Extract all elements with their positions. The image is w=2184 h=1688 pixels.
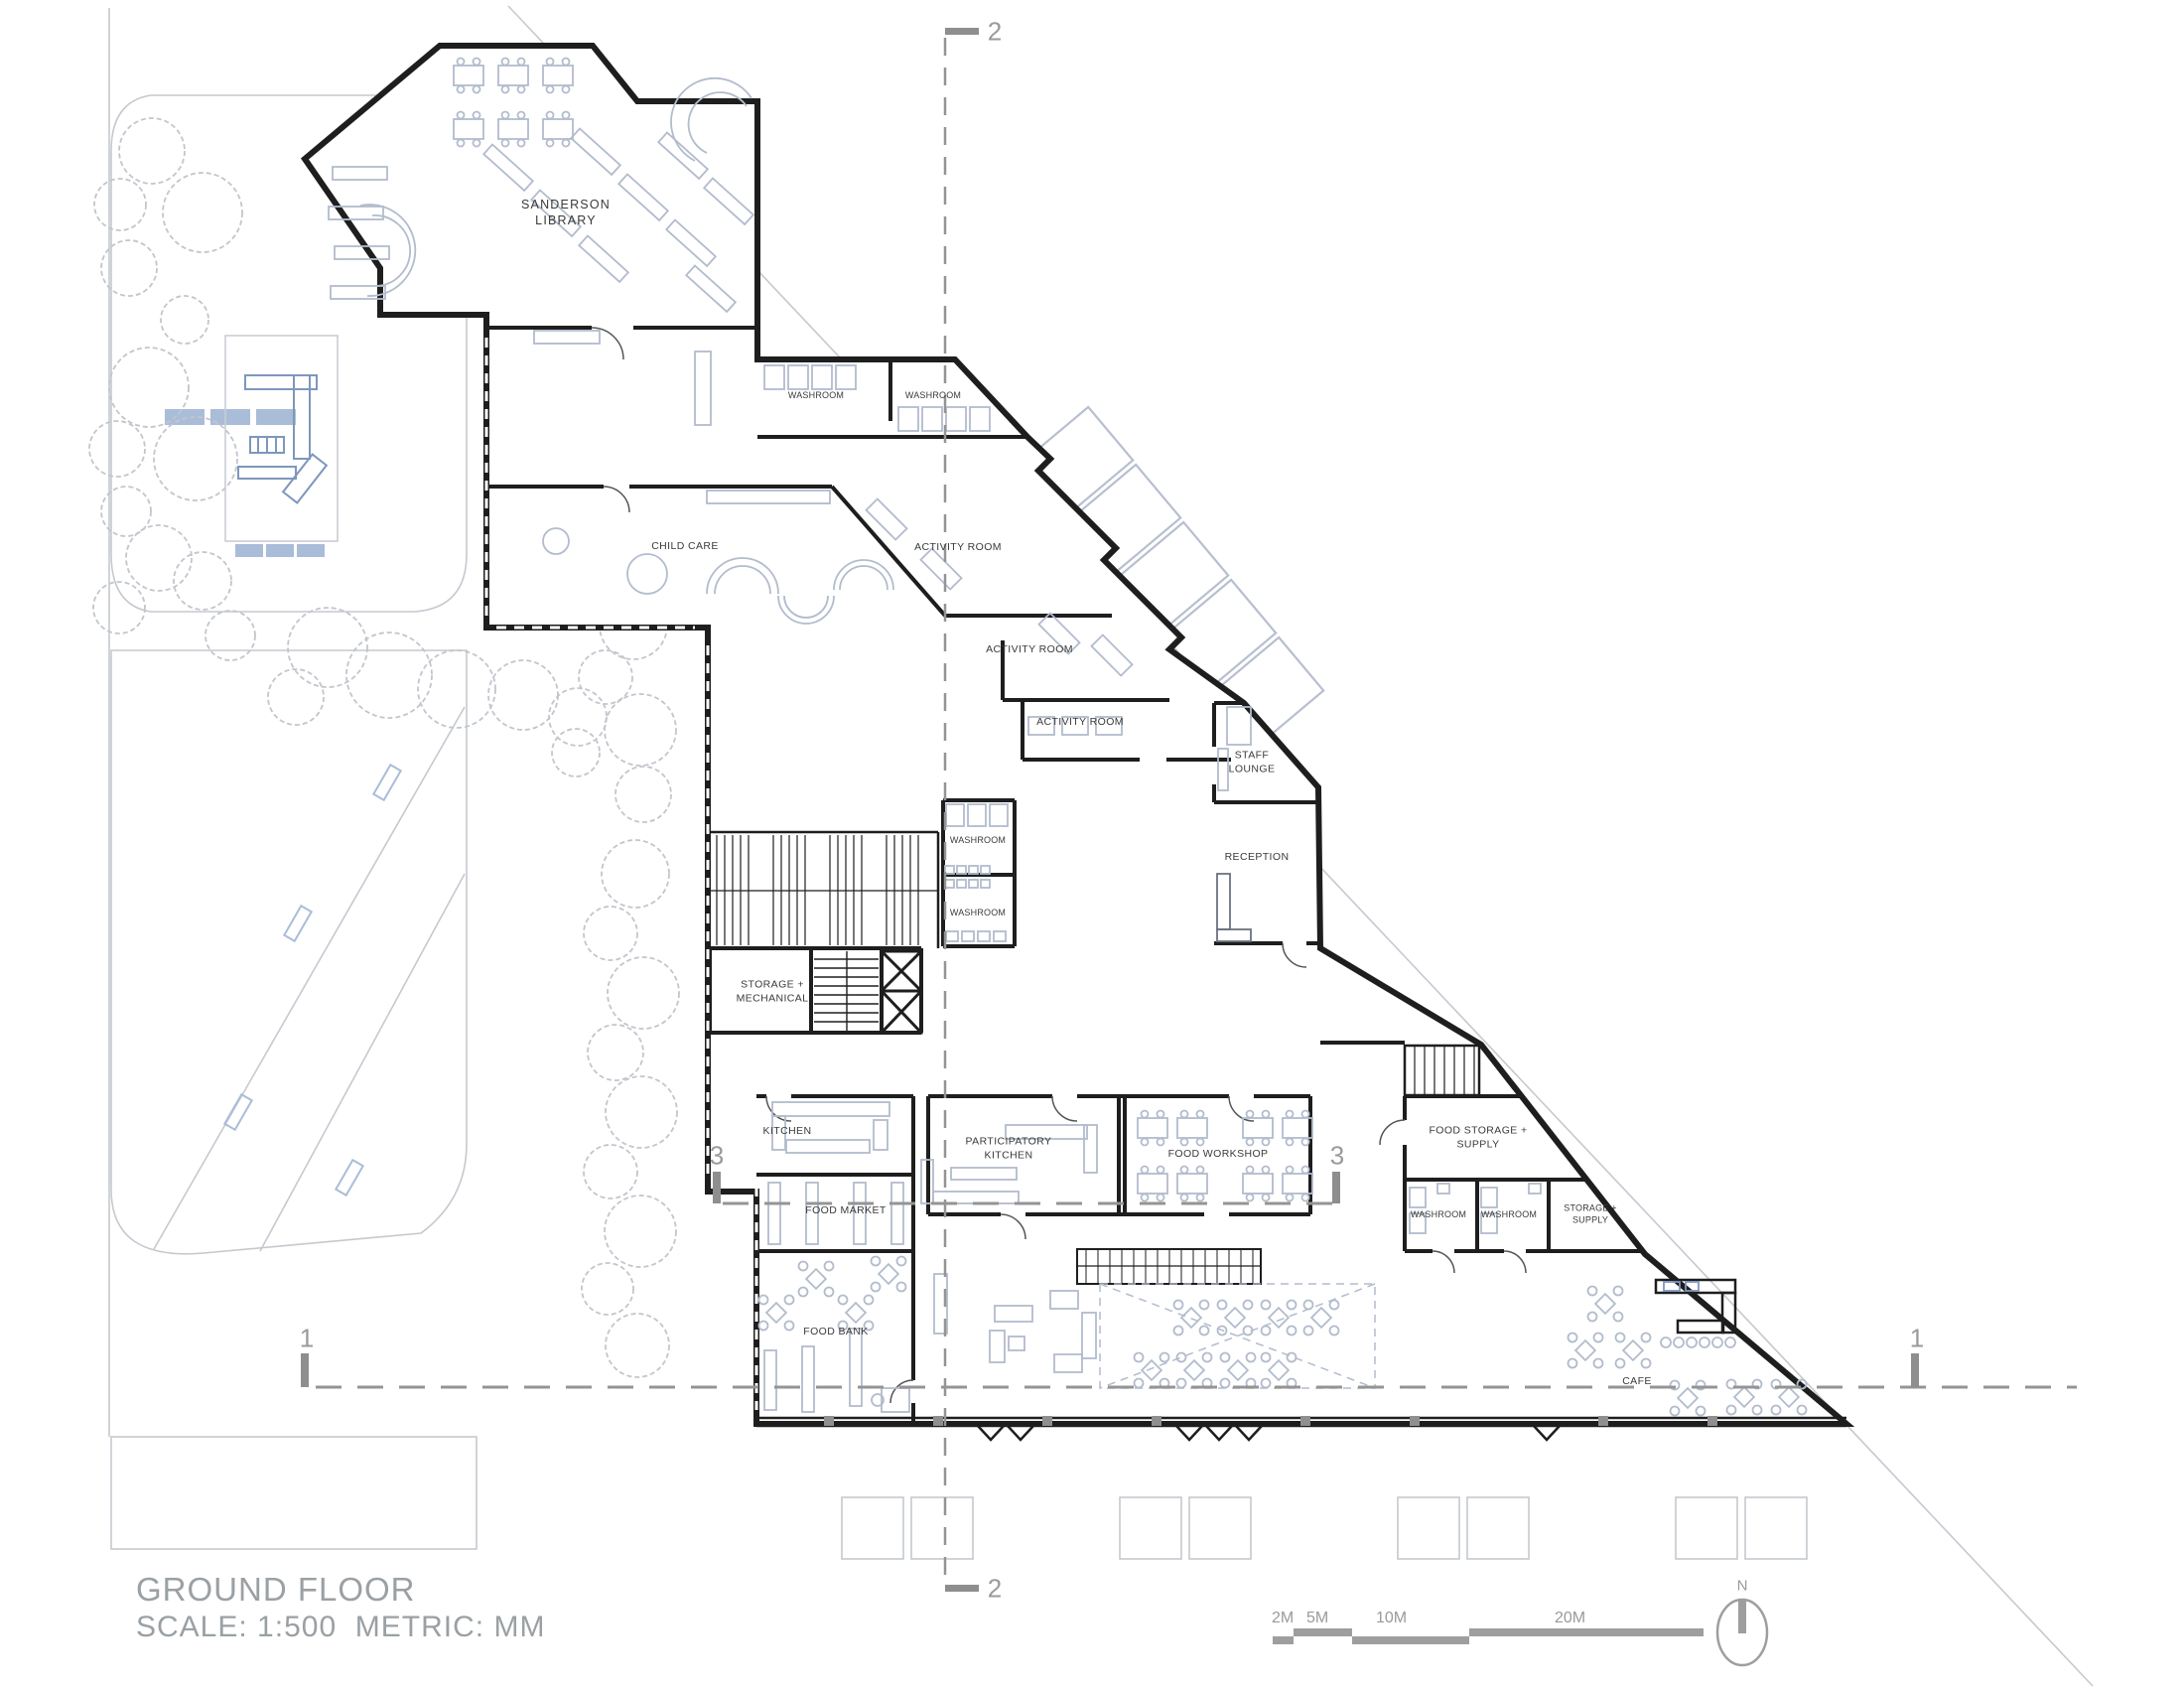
- north-arrow: [1717, 1600, 1767, 1665]
- floor-plan-sheet: SANDERSON LIBRARY WASHROOM WASHROOM CHIL…: [0, 0, 2184, 1688]
- room-label-activity-room-3: ACTIVITY ROOM: [1036, 716, 1124, 730]
- room-label-storage-supply: STORAGE + SUPPLY: [1564, 1202, 1616, 1225]
- lawn-path-1: [154, 707, 465, 1249]
- scale-label-20m: 20M: [1555, 1610, 1585, 1627]
- section-marker-1-right: 1: [1910, 1324, 1924, 1354]
- upper-benches: [165, 409, 296, 425]
- paving-squares: [842, 1497, 1807, 1559]
- room-label-washroom-3: WASHROOM: [950, 835, 1006, 847]
- floor-plan-drawing: [0, 0, 2184, 1688]
- room-label-washroom-4: WASHROOM: [950, 908, 1006, 919]
- room-label-washroom-6: WASHROOM: [1481, 1209, 1537, 1221]
- scale-label-10m: 10M: [1376, 1610, 1407, 1627]
- room-label-washroom-1: WASHROOM: [788, 390, 844, 402]
- lawn-path-2: [260, 874, 465, 1251]
- section-marker-1-left: 1: [300, 1324, 314, 1354]
- room-label-food-workshop: FOOD WORKSHOP: [1168, 1148, 1269, 1162]
- section-marker-3-right: 3: [1330, 1141, 1344, 1172]
- room-label-washroom-5: WASHROOM: [1411, 1209, 1466, 1221]
- room-label-child-care: CHILD CARE: [651, 540, 719, 554]
- room-label-sanderson-library: SANDERSON LIBRARY: [521, 197, 611, 229]
- room-label-food-market: FOOD MARKET: [805, 1204, 886, 1218]
- room-label-activity-room-2: ACTIVITY ROOM: [986, 643, 1073, 657]
- room-label-activity-room-1: ACTIVITY ROOM: [914, 541, 1002, 555]
- section-marker-2-top: 2: [988, 17, 1002, 48]
- north-arrow-label: N: [1737, 1578, 1748, 1595]
- drawing-title: GROUND FLOOR: [136, 1571, 416, 1609]
- lawn-lower: [111, 650, 467, 1254]
- room-label-food-storage-supply: FOOD STORAGE + SUPPLY: [1429, 1124, 1527, 1151]
- section-marker-3-left: 3: [710, 1141, 724, 1172]
- room-label-washroom-2: WASHROOM: [905, 390, 961, 402]
- scale-label-2m: 2M: [1272, 1610, 1294, 1627]
- section-marker-2-bottom: 2: [988, 1574, 1002, 1605]
- scale-label-5m: 5M: [1306, 1610, 1328, 1627]
- room-label-cafe: CAFE: [1622, 1375, 1652, 1389]
- room-label-food-bank: FOOD BANK: [803, 1326, 868, 1339]
- room-label-storage-mechanical: STORAGE + MECHANICAL: [737, 978, 809, 1005]
- room-label-reception: RECEPTION: [1225, 851, 1290, 865]
- entry-doors: [978, 1426, 1560, 1440]
- room-label-staff-lounge: STAFF LOUNGE: [1229, 749, 1276, 775]
- room-label-participatory-kitchen: PARTICIPATORY KITCHEN: [966, 1135, 1052, 1162]
- site-pad-bottom-left: [111, 1437, 477, 1549]
- drawing-scale-note: SCALE: 1:500 METRIC: MM: [136, 1611, 545, 1644]
- path-benches: [224, 765, 400, 1195]
- room-label-kitchen: KITCHEN: [763, 1125, 812, 1139]
- playground: [225, 336, 338, 557]
- scale-bar: [1273, 1628, 1704, 1644]
